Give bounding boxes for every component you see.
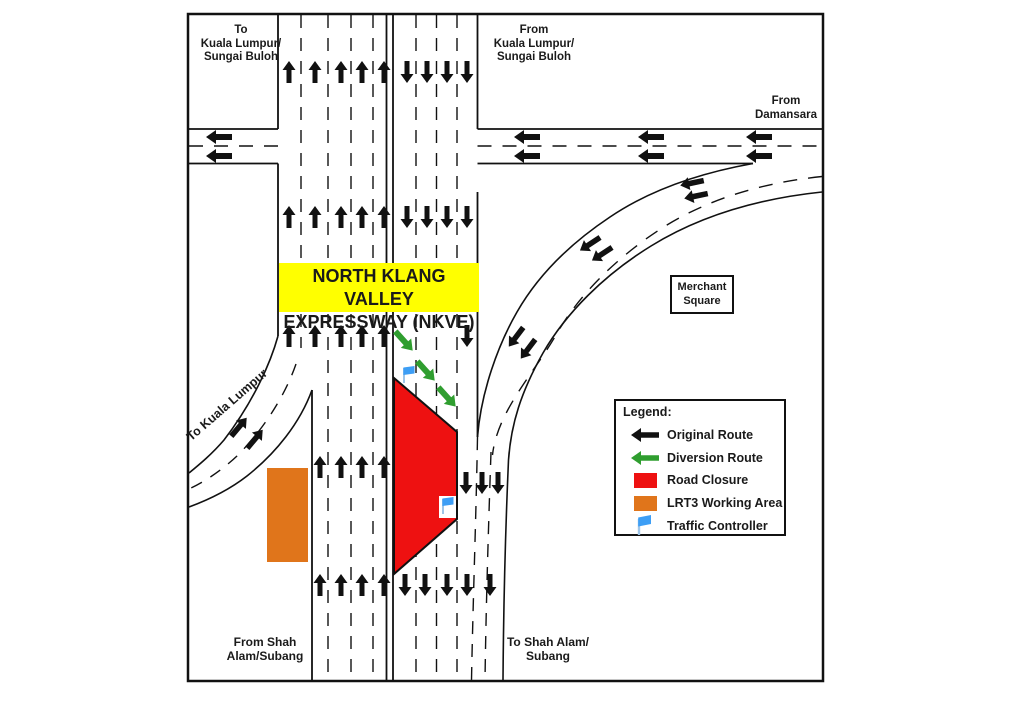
legend-item-lrt3-working-area: LRT3 Working Area: [623, 492, 780, 515]
merchant-square-box: Merchant Square: [670, 275, 734, 314]
traffic-controller-flag: [439, 496, 456, 518]
lrt3-working-area: [267, 468, 308, 562]
traffic-controller-flag-icon: [623, 515, 667, 537]
map-border: [188, 14, 823, 681]
label-to-kuala-lumpur-sungai-buloh: To Kuala Lumpur/ Sungai Buloh: [189, 24, 293, 65]
label-from-kuala-lumpur-sungai-buloh: From Kuala Lumpur/ Sungai Buloh: [482, 24, 586, 65]
original-route-arrow-icon: [623, 427, 667, 443]
label-from-shah-alam-subang: From Shah Alam/Subang: [213, 636, 317, 663]
legend-item-road-closure: Road Closure: [623, 469, 780, 492]
label-to-shah-alam-subang: To Shah Alam/ Subang: [495, 636, 601, 663]
lrt3-area-swatch-icon: [623, 496, 667, 511]
legend-title: Legend:: [623, 405, 780, 419]
diversion-route-arrow-icon: [623, 450, 667, 466]
legend: Legend: Original Route Diversion Route R…: [614, 399, 786, 536]
road-closure-swatch-icon: [623, 473, 667, 488]
legend-item-diversion-route: Diversion Route: [623, 447, 780, 470]
road-diagram: [0, 0, 1024, 724]
legend-item-traffic-controller: Traffic Controller: [623, 514, 780, 537]
nkve-expressway-title: NORTH KLANG VALLEY EXPRESSWAY (NKVE): [279, 263, 479, 312]
legend-item-original-route: Original Route: [623, 424, 780, 447]
traffic-diversion-map: To Kuala Lumpur/ Sungai Buloh From Kuala…: [0, 0, 1024, 724]
label-from-damansara: From Damansara: [744, 95, 828, 122]
